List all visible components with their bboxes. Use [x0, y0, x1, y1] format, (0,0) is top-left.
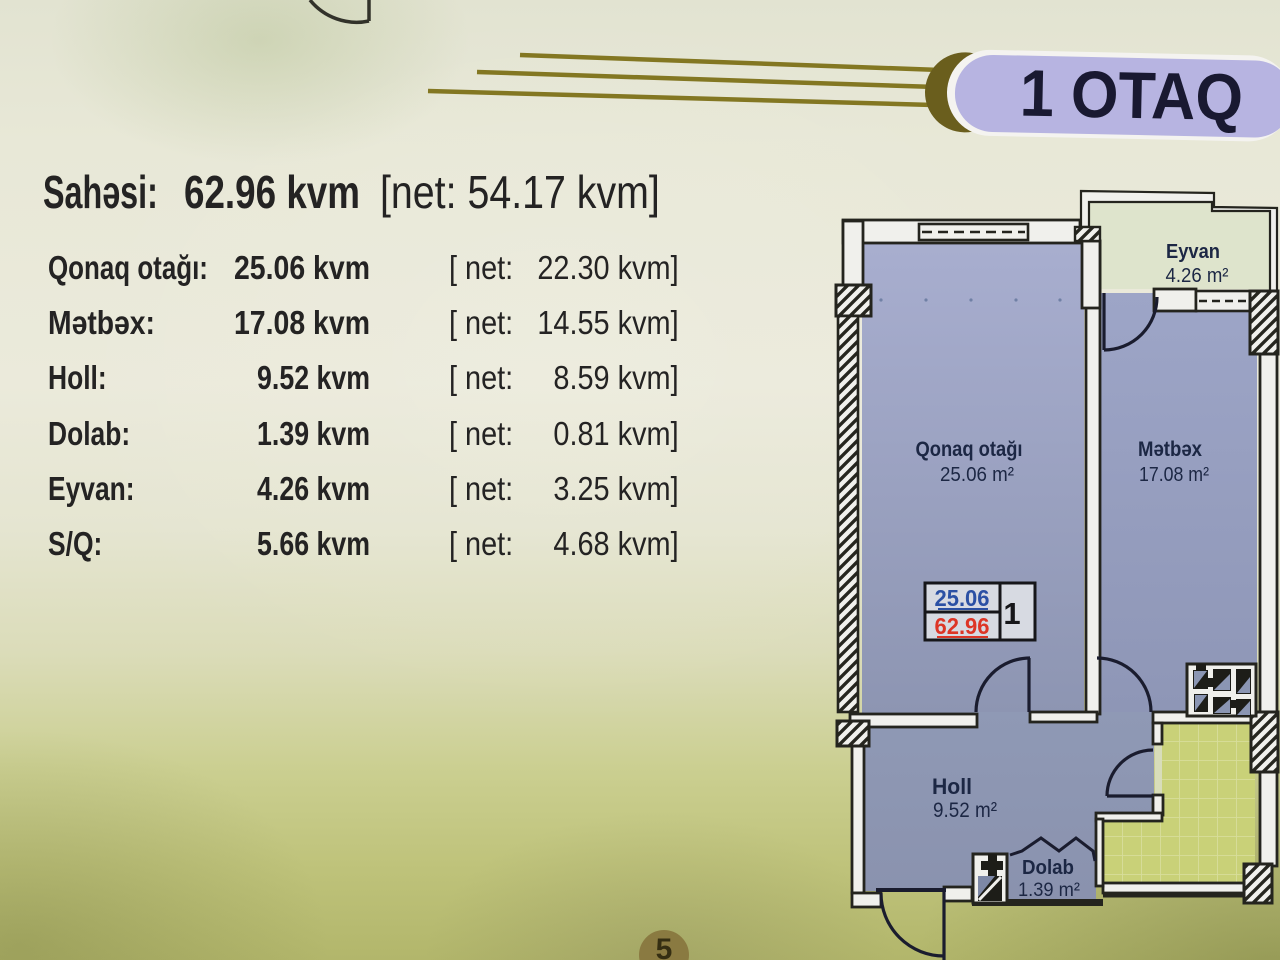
- svg-text:5: 5: [656, 933, 673, 960]
- svg-text:Eyvan: Eyvan: [1166, 241, 1220, 263]
- svg-text:Dolab: Dolab: [1022, 857, 1074, 879]
- svg-text:1: 1: [1003, 596, 1020, 631]
- svg-text:62.96: 62.96: [935, 613, 990, 639]
- svg-text:Qonaq otağı: Qonaq otağı: [916, 438, 1023, 461]
- svg-text:Holl: Holl: [932, 774, 972, 799]
- svg-text:17.08 m²: 17.08 m²: [1139, 464, 1209, 486]
- svg-text:25.06 m²: 25.06 m²: [940, 464, 1014, 486]
- svg-text:25.06: 25.06: [935, 585, 990, 611]
- svg-text:4.26 m²: 4.26 m²: [1166, 265, 1229, 287]
- svg-text:9.52 m²: 9.52 m²: [933, 799, 997, 822]
- svg-text:1 OTAQ: 1 OTAQ: [1019, 56, 1244, 135]
- svg-text:1.39 m²: 1.39 m²: [1018, 880, 1080, 901]
- svg-text:Mətbəx: Mətbəx: [1138, 438, 1202, 461]
